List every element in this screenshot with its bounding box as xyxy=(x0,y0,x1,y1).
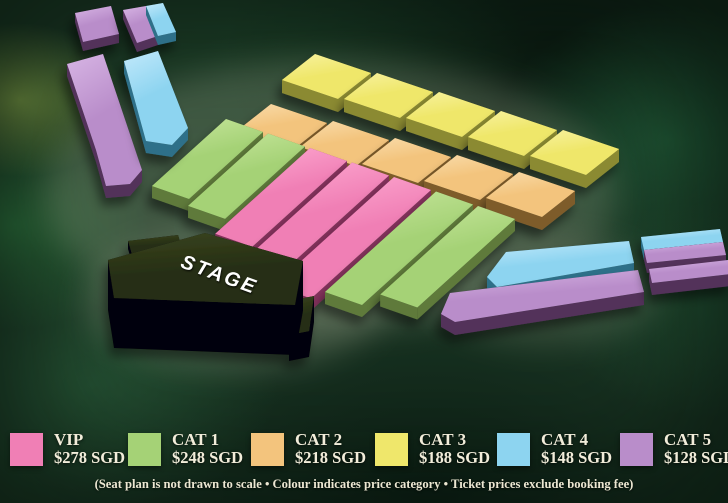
legend-item-cat-4: CAT 4$148 SGD xyxy=(497,431,612,467)
legend-category-name: VIP xyxy=(54,431,125,449)
seat-block-left-bar-small[interactable] xyxy=(75,6,119,51)
legend-swatch-cat-2 xyxy=(251,433,284,466)
footnote-text: (Seat plan is not drawn to scale • Colou… xyxy=(0,477,728,492)
seat-map-screen: STAGE VIP$278 SGDCAT 1$248 SGDCAT 2$218 … xyxy=(0,0,728,503)
legend-item-cat-1: CAT 1$248 SGD xyxy=(128,431,243,467)
legend-category-name: CAT 3 xyxy=(419,431,490,449)
legend: VIP$278 SGDCAT 1$248 SGDCAT 2$218 SGDCAT… xyxy=(0,431,728,473)
legend-category-price: $128 SGD xyxy=(664,449,728,467)
legend-category-name: CAT 2 xyxy=(295,431,366,449)
legend-swatch-cat-1 xyxy=(128,433,161,466)
legend-category-price: $218 SGD xyxy=(295,449,366,467)
legend-item-cat-2: CAT 2$218 SGD xyxy=(251,431,366,467)
legend-category-price: $248 SGD xyxy=(172,449,243,467)
legend-category-name: CAT 5 xyxy=(664,431,728,449)
legend-item-cat-3: CAT 3$188 SGD xyxy=(375,431,490,467)
legend-item-vip: VIP$278 SGD xyxy=(10,431,125,467)
legend-category-price: $148 SGD xyxy=(541,449,612,467)
legend-category-price: $188 SGD xyxy=(419,449,490,467)
block-side-face xyxy=(114,298,295,355)
legend-swatch-cat-3 xyxy=(375,433,408,466)
legend-category-name: CAT 1 xyxy=(172,431,243,449)
legend-swatch-cat-4 xyxy=(497,433,530,466)
block-side-face xyxy=(106,184,130,198)
legend-category-name: CAT 4 xyxy=(541,431,612,449)
legend-swatch-vip xyxy=(10,433,43,466)
legend-item-cat-5: CAT 5$128 SGD xyxy=(620,431,728,467)
legend-swatch-cat-5 xyxy=(620,433,653,466)
legend-category-price: $278 SGD xyxy=(54,449,125,467)
seat-map-graphic xyxy=(0,0,728,503)
seat-block-left-bar-split[interactable] xyxy=(123,3,176,52)
